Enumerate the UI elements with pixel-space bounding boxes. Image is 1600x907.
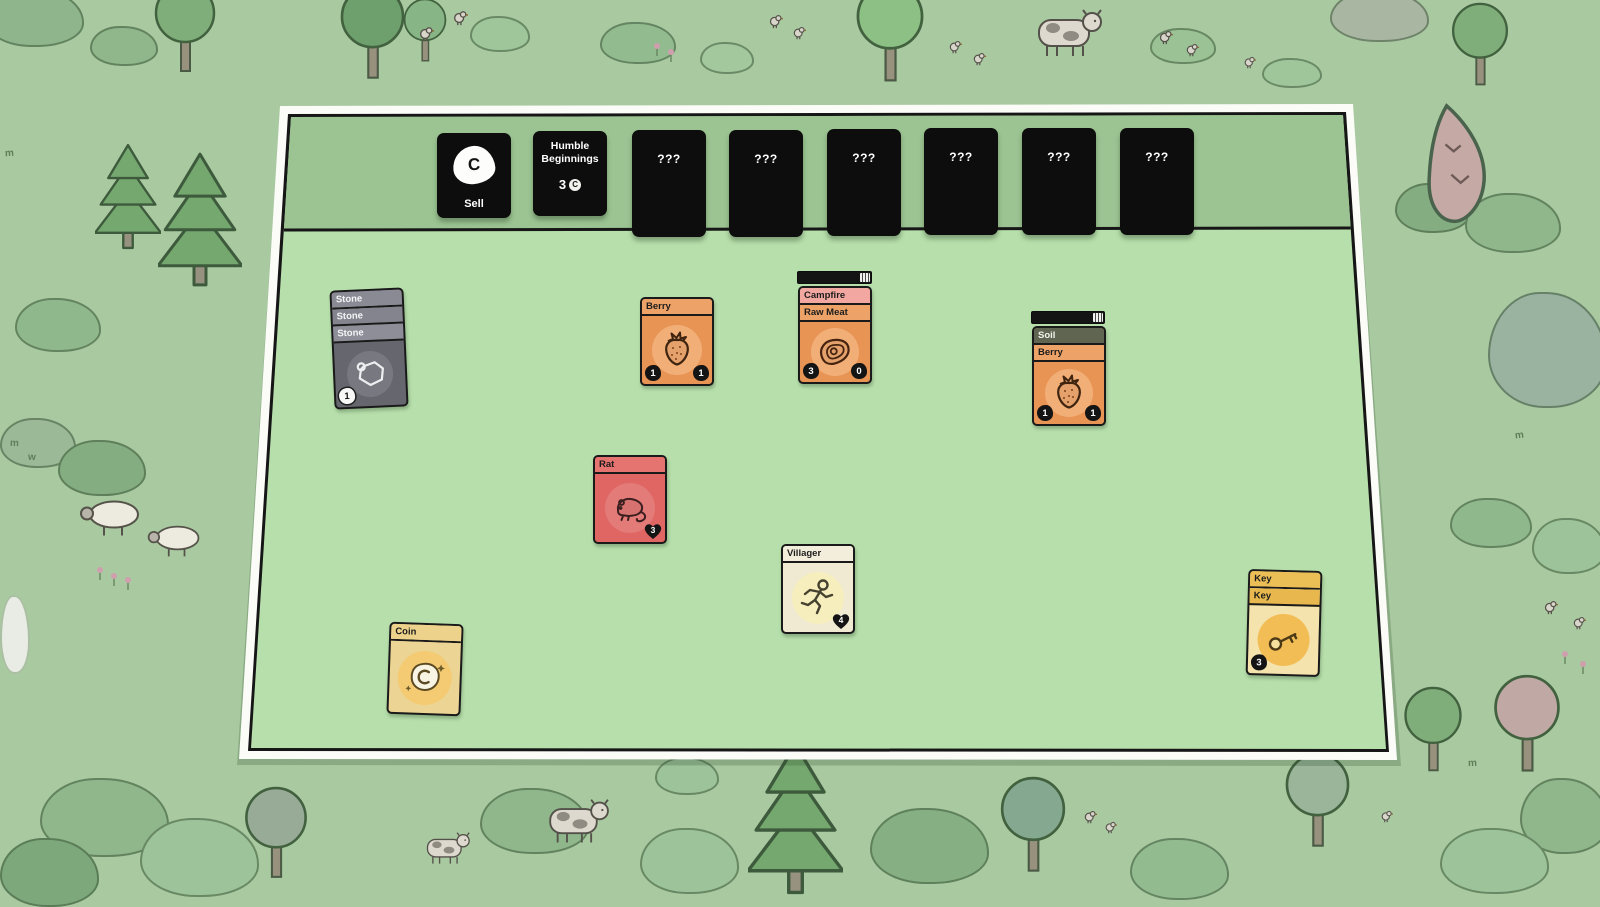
card-art: 4: [783, 563, 853, 632]
pack-price-value: 3: [559, 177, 566, 192]
card-art: 1 1: [1034, 362, 1104, 424]
locked-pack-4[interactable]: ???: [924, 128, 998, 235]
card-title: Soil: [1034, 328, 1104, 345]
pack-price: 3 C: [533, 177, 607, 192]
unknown-label: ???: [852, 151, 876, 165]
sell-value-badge: 3: [1251, 654, 1267, 670]
strawberry-icon: [655, 328, 699, 372]
card-stack-soil-berry[interactable]: Soil Berry 1 1: [1032, 326, 1106, 426]
strawberry-icon: [1047, 371, 1091, 415]
locked-pack-5[interactable]: ???: [1022, 128, 1096, 235]
quantity-badge: 1: [339, 388, 356, 405]
card-art: 1 1: [642, 316, 712, 384]
unknown-label: ???: [949, 150, 973, 164]
unknown-label: ???: [657, 152, 681, 166]
card-title: Villager: [783, 546, 853, 563]
crafting-progress-bar: [797, 271, 872, 284]
pack-title: Humble Beginnings: [533, 140, 607, 165]
crafting-progress-bar: [1031, 311, 1105, 324]
locked-pack-3[interactable]: ???: [827, 129, 901, 236]
card-art: [388, 641, 460, 714]
food-value-badge: 1: [1085, 405, 1101, 421]
card-stack-stone[interactable]: Stone Stone Stone 1: [329, 287, 408, 409]
progress-fill: [1093, 313, 1103, 322]
sell-card[interactable]: C Sell: [437, 133, 511, 218]
health-badge: 4: [831, 612, 851, 630]
card-art: 1: [334, 340, 407, 407]
progress-fill: [860, 273, 870, 282]
food-value-badge: 1: [693, 365, 709, 381]
sell-value-badge: 1: [645, 365, 661, 381]
card-title: Key: [1250, 571, 1320, 590]
health-value: 4: [831, 612, 851, 630]
unknown-label: ???: [754, 152, 778, 166]
card-title: Berry: [642, 299, 712, 316]
coin-icon: C: [569, 179, 581, 191]
card-coin[interactable]: Coin: [386, 622, 463, 717]
unknown-label: ???: [1047, 150, 1071, 164]
locked-pack-2[interactable]: ???: [729, 130, 803, 237]
card-art: 3: [1248, 605, 1320, 675]
card-stack-campfire-raw-meat[interactable]: Campfire Raw Meat 3 0: [798, 286, 872, 384]
coin-letter: C: [468, 155, 481, 175]
card-title: Rat: [595, 457, 665, 474]
sell-value-badge: 3: [803, 363, 819, 379]
coin-letter: C: [572, 180, 578, 189]
locked-pack-1[interactable]: ???: [632, 130, 706, 237]
card-title: Raw Meat: [800, 305, 870, 322]
card-berry[interactable]: Berry 1 1: [640, 297, 714, 386]
sell-label: Sell: [437, 198, 511, 210]
card-title: Campfire: [800, 288, 870, 305]
stone-icon: [347, 351, 393, 397]
card-rat[interactable]: Rat 3: [593, 455, 667, 544]
health-value: 3: [643, 522, 663, 540]
card-stack-key[interactable]: Key Key 3: [1246, 569, 1323, 677]
food-value-badge: 0: [851, 363, 867, 379]
card-art: 3 0: [800, 322, 870, 382]
coin-icon: [402, 655, 448, 701]
card-title: Key: [1249, 588, 1319, 607]
pack-humble-beginnings[interactable]: Humble Beginnings 3 C: [533, 131, 607, 216]
card-title: Berry: [1034, 345, 1104, 362]
locked-pack-6[interactable]: ???: [1120, 128, 1194, 235]
card-villager[interactable]: Villager 4: [781, 544, 855, 634]
key-icon: [1261, 617, 1306, 662]
sell-value-badge: 1: [1037, 405, 1053, 421]
card-art: 3: [595, 474, 665, 542]
unknown-label: ???: [1145, 150, 1169, 164]
coin-icon: C: [451, 144, 497, 186]
health-badge: 3: [643, 522, 663, 540]
